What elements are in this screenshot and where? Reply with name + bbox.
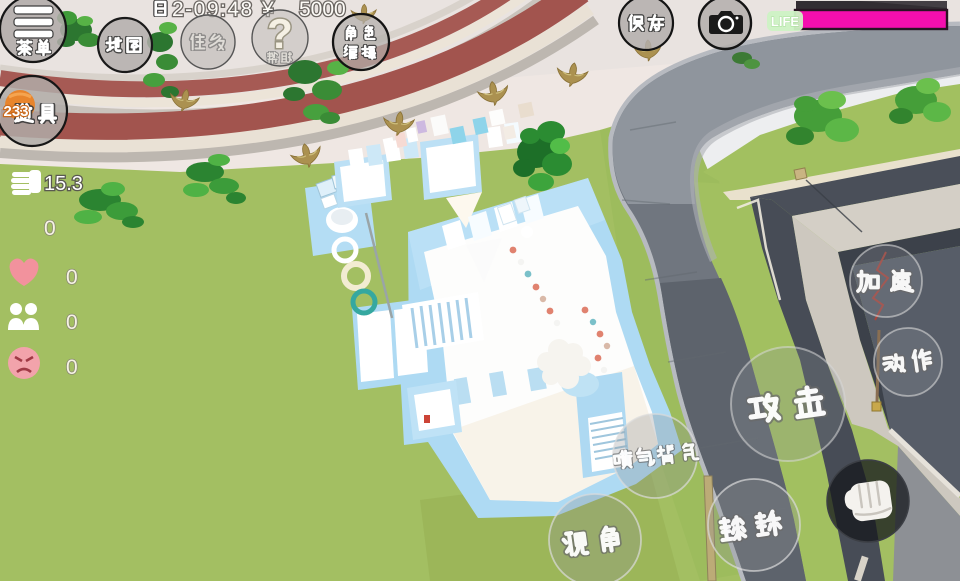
svg-text:15.3: 15.3 xyxy=(44,173,83,195)
svg-text:LIFE: LIFE xyxy=(771,14,799,29)
svg-text:?: ? xyxy=(267,10,293,57)
svg-text:0: 0 xyxy=(66,266,78,289)
svg-text:5000: 5000 xyxy=(299,0,346,21)
svg-text:0: 0 xyxy=(66,311,78,334)
svg-text:0: 0 xyxy=(66,356,78,379)
svg-text:0: 0 xyxy=(44,217,56,240)
svg-text:233: 233 xyxy=(3,103,28,120)
